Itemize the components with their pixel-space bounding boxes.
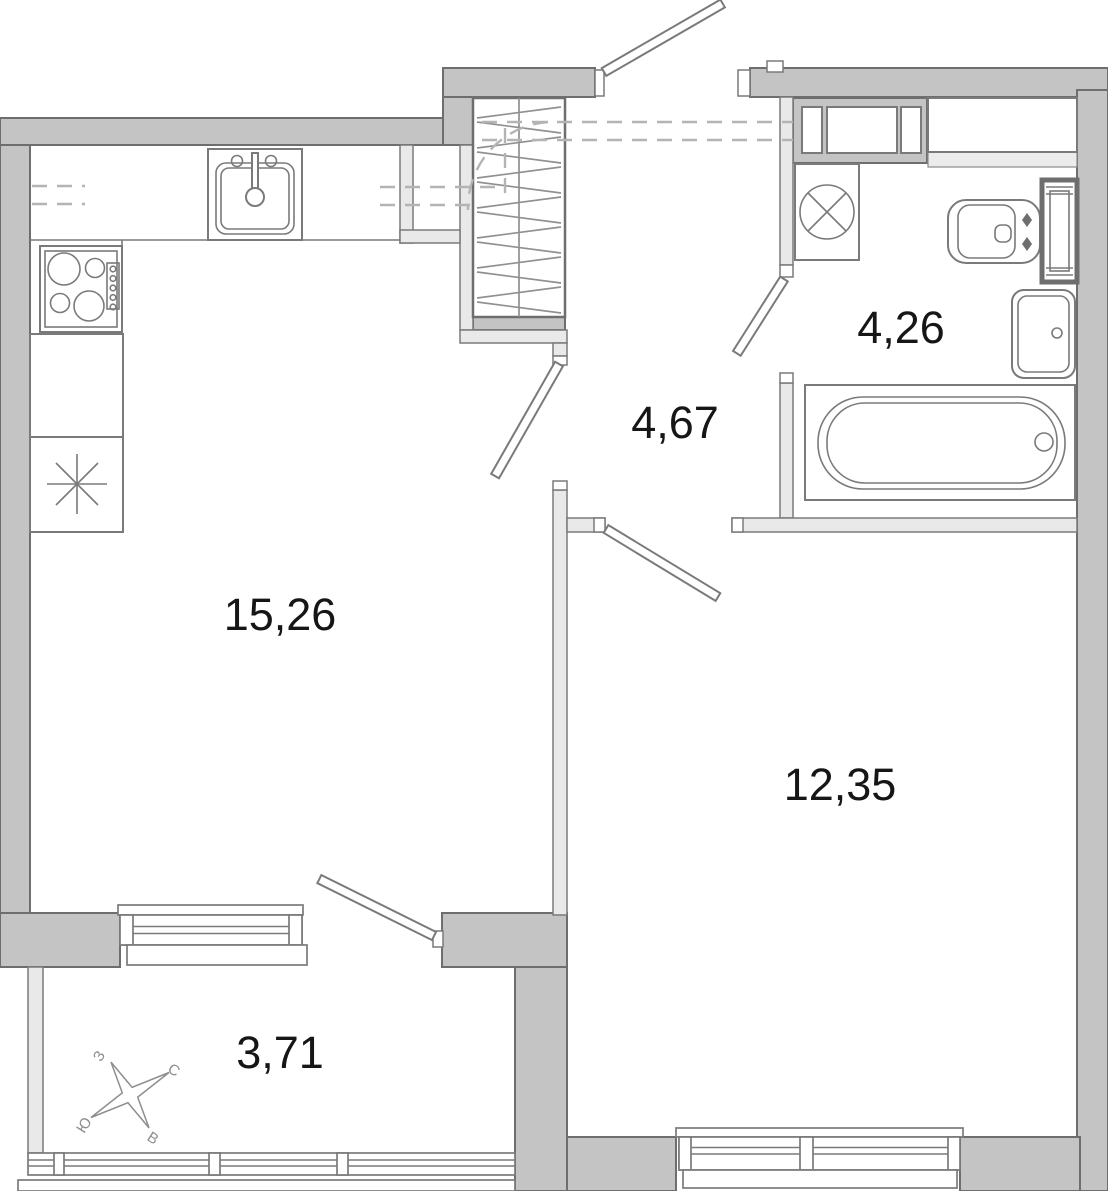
- bathtub: [805, 385, 1075, 500]
- balcony-glazing: [18, 1153, 515, 1191]
- bedroom-door-leaf: [604, 525, 721, 601]
- wardrobe: [468, 98, 565, 317]
- room-label-balcony: 3,71: [236, 1027, 324, 1078]
- compass-west-label: З: [90, 1048, 109, 1065]
- refrigerator: [30, 437, 123, 532]
- balcony-door-leaf: [317, 875, 436, 940]
- compass-rose: З С Ю В: [73, 1048, 183, 1148]
- room-label-bathroom: 4,26: [857, 302, 945, 353]
- kitchen-balcony-window: [118, 905, 307, 965]
- room-label-kitchen-living: 15,26: [224, 589, 337, 640]
- entry-door-leaf: [602, 0, 725, 76]
- kitchen-fixtures: [30, 149, 400, 532]
- toilet: [948, 200, 1040, 263]
- compass-star-icon: [91, 1062, 169, 1128]
- compass-north-label: С: [165, 1060, 183, 1080]
- compass-east-label: В: [144, 1129, 162, 1149]
- kitchen-door-leaf: [491, 362, 563, 479]
- room-label-hallway: 4,67: [631, 397, 719, 448]
- washing-machine: [795, 164, 859, 260]
- wash-basin: [1012, 290, 1075, 378]
- kitchen-cabinet: [30, 334, 123, 437]
- bedroom-window: [676, 1128, 963, 1188]
- kitchen-sink: [208, 149, 302, 240]
- bathroom-storage: [802, 98, 1077, 153]
- floor-plan: 15,26 4,67 4,26 12,35 3,71 З С Ю В: [0, 0, 1108, 1191]
- stove: [40, 246, 122, 332]
- floor-plan-canvas: 15,26 4,67 4,26 12,35 3,71 З С Ю В: [0, 0, 1108, 1191]
- room-label-bedroom: 12,35: [784, 759, 897, 810]
- bathroom-door-leaf: [733, 277, 788, 356]
- towel-radiator: [1042, 180, 1077, 282]
